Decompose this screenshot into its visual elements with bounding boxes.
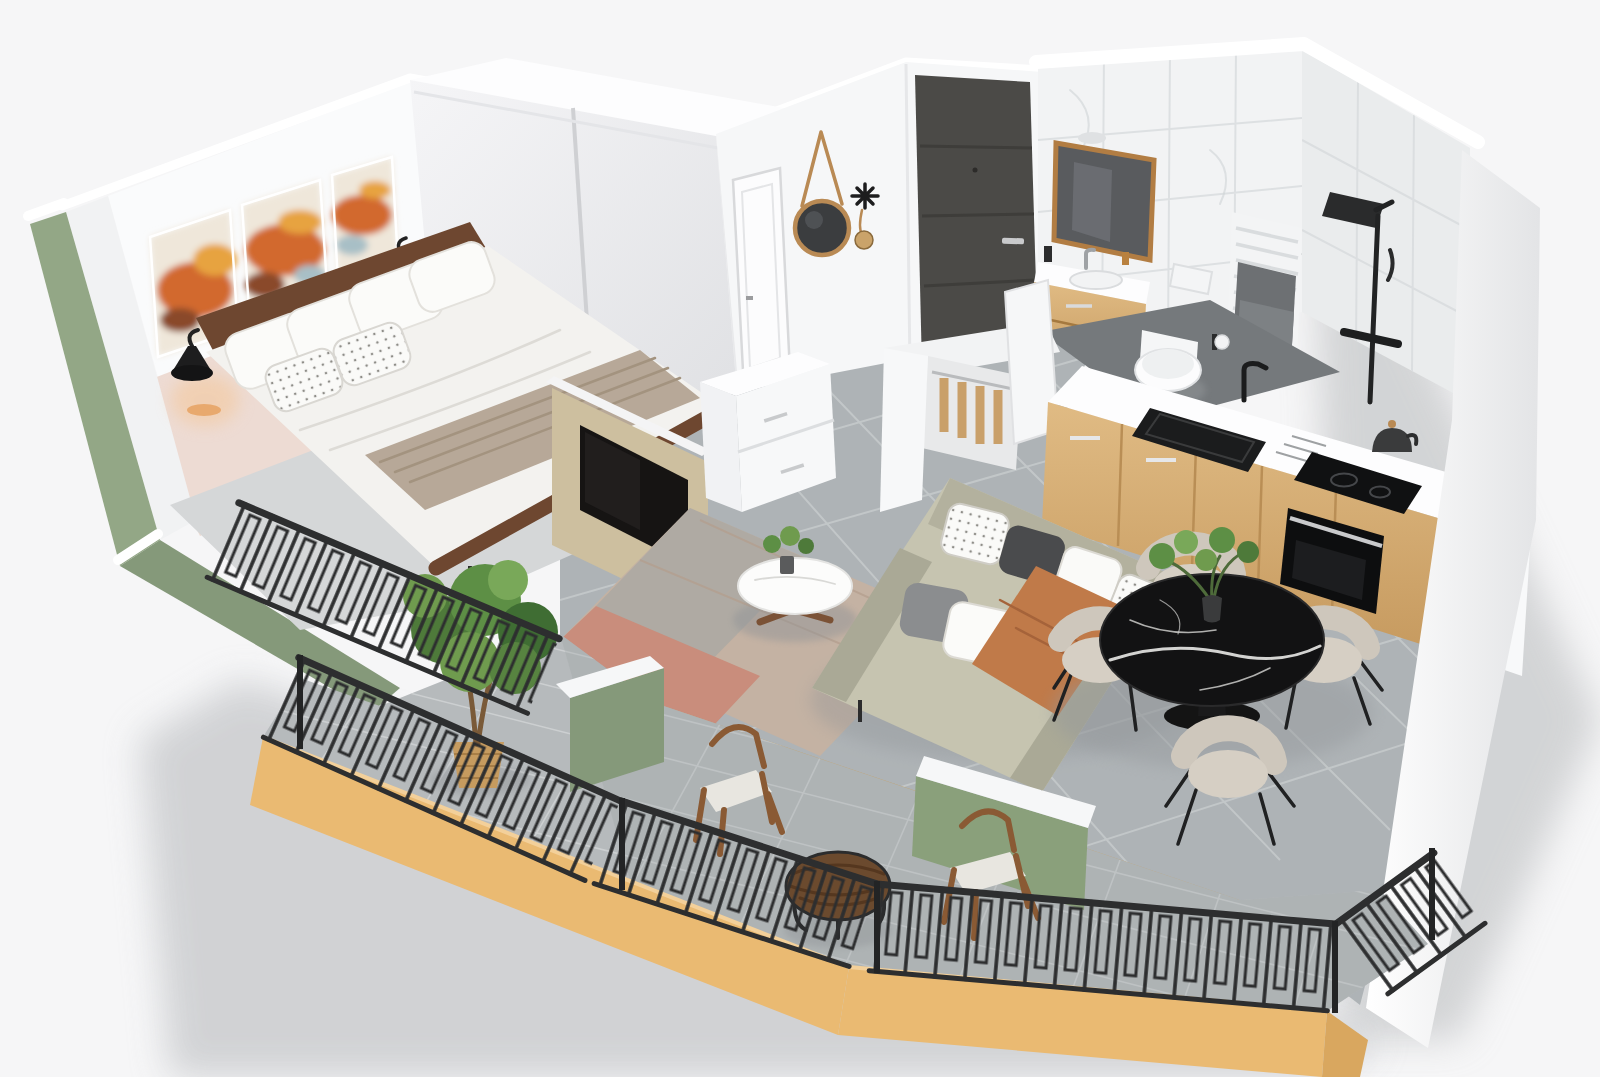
toilet-paper-holder <box>1212 334 1229 350</box>
bottle-dark <box>1044 246 1052 262</box>
interior-door <box>733 168 790 390</box>
door-handle <box>746 296 753 300</box>
bottle-amber <box>1122 252 1129 265</box>
front-door-handle <box>1002 238 1024 245</box>
vanity-sink <box>1070 271 1122 289</box>
vanity-light <box>1078 132 1106 144</box>
coffee-table-top <box>738 558 852 614</box>
hanging-bag <box>855 231 873 249</box>
closet-left-panel <box>880 348 928 512</box>
apartment-render <box>0 0 1600 1077</box>
plant-vase <box>1202 595 1222 623</box>
floorplan-svg <box>0 0 1600 1077</box>
kettle-knob <box>1388 420 1396 428</box>
